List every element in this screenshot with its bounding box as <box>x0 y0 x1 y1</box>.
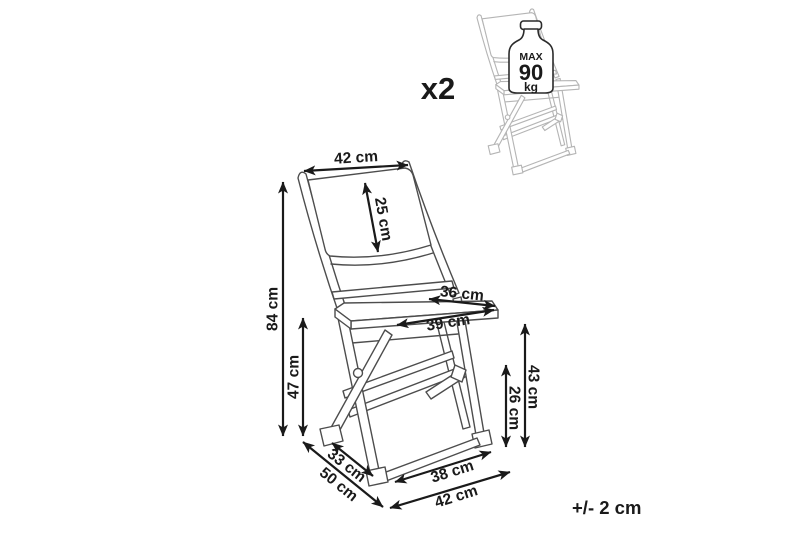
dimension-label: 47 cm <box>285 355 302 399</box>
dimension-rear-frame-height: 43 cm <box>525 324 542 447</box>
dimension-stretcher-height: 26 cm <box>506 365 523 447</box>
diagram-canvas: MAX 90 kg x2 42 cm 25 cm 84 cm 47 cm 36 … <box>0 0 800 533</box>
dimension-label: 84 cm <box>264 287 281 331</box>
dimension-label: 43 cm <box>525 365 542 409</box>
tolerance-label: +/- 2 cm <box>572 497 641 518</box>
dimension-label: 42 cm <box>334 148 379 168</box>
dimension-label: 42 cm <box>433 482 480 511</box>
dimension-seat-height: 47 cm <box>285 318 303 436</box>
product-dimension-diagram: MAX 90 kg x2 42 cm 25 cm 84 cm 47 cm 36 … <box>0 0 800 533</box>
dimension-label: 26 cm <box>506 386 523 430</box>
dimension-backrest-width: 42 cm <box>304 148 408 171</box>
quantity-label: x2 <box>421 71 455 106</box>
dimension-overall-height: 84 cm <box>264 182 283 436</box>
max-weight-unit: kg <box>524 80 538 94</box>
